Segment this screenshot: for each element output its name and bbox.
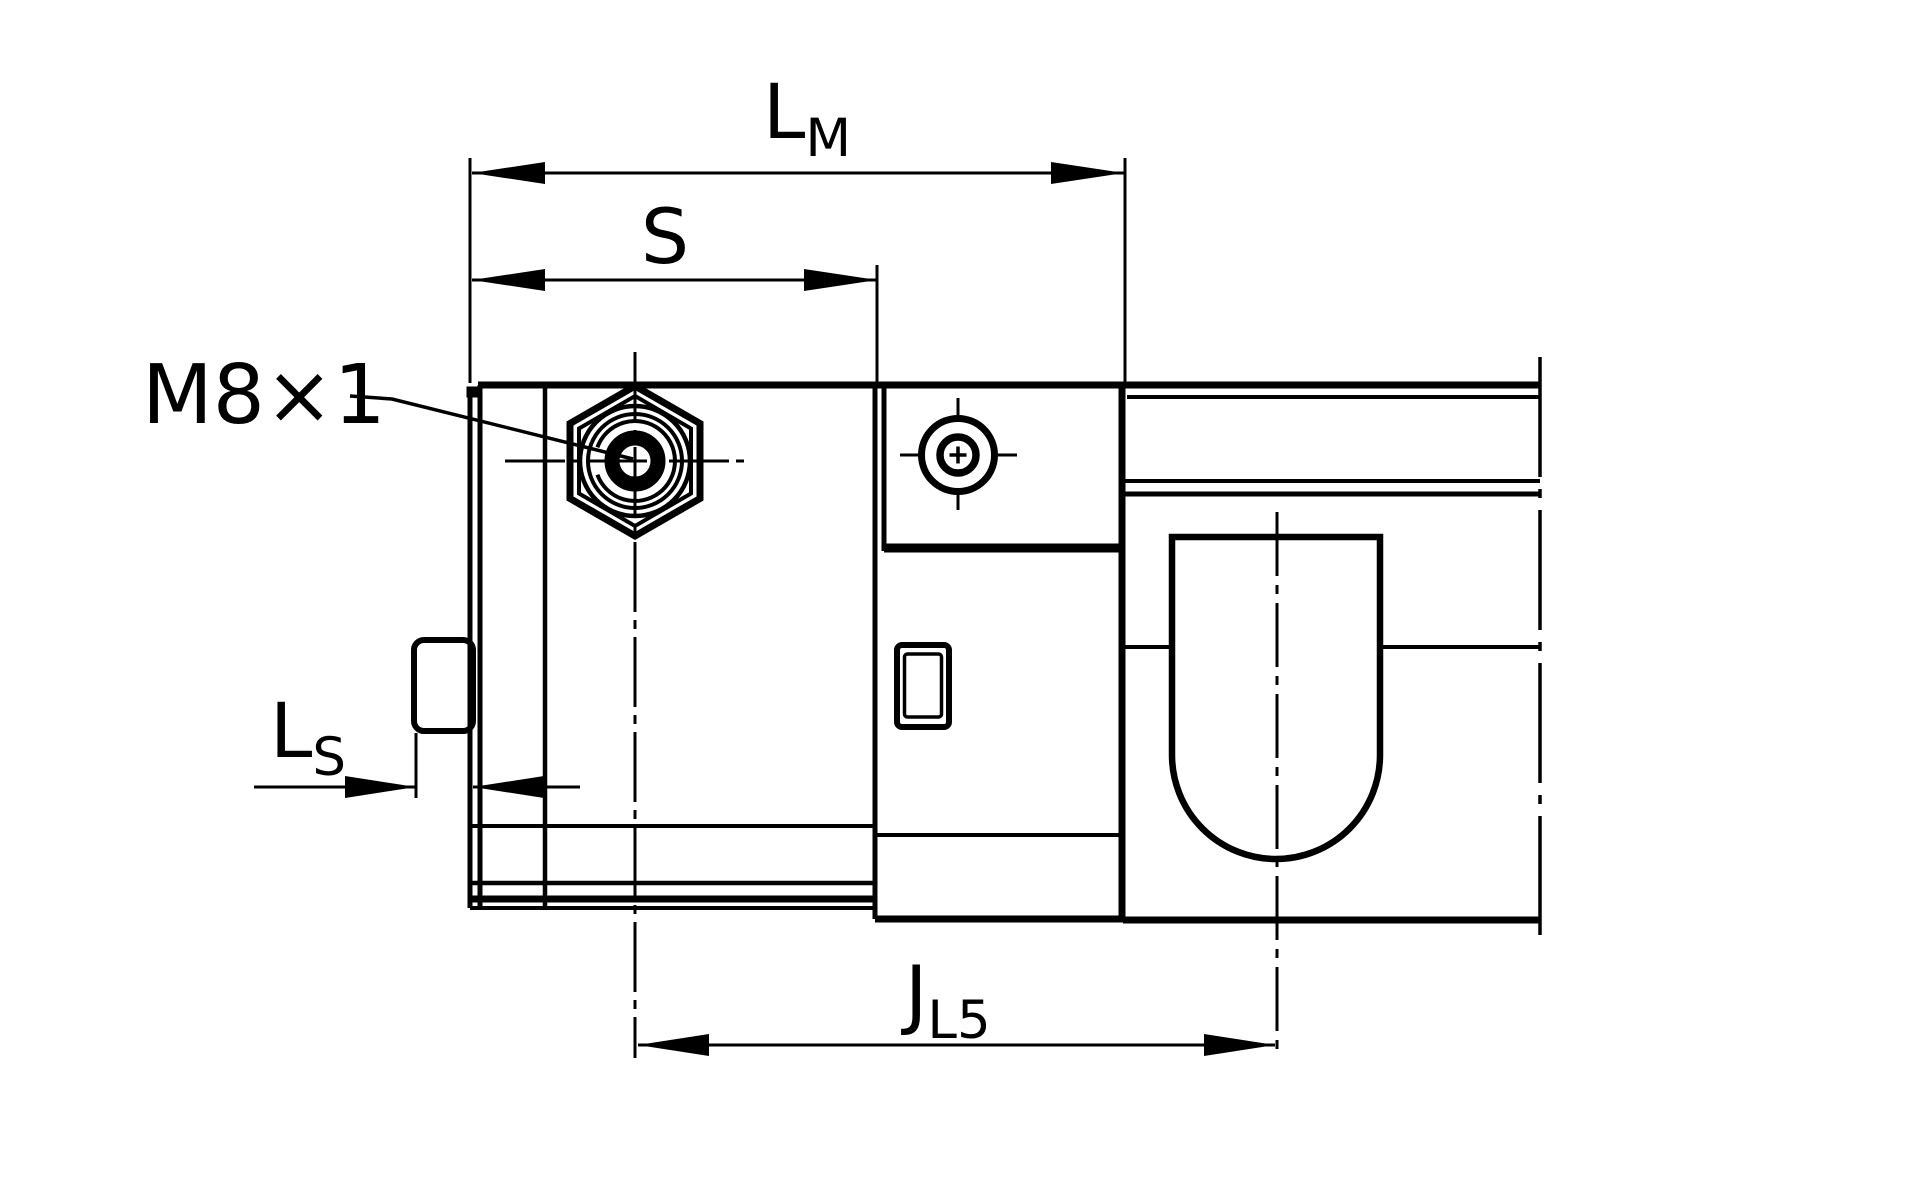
s-arrow-left [472,269,545,291]
technical-drawing: LM S LS JL5 M8×1 [0,0,1920,1200]
end-plug [414,640,473,731]
dimension-s-label: S [641,192,689,281]
dimension-lm-label: LM [763,67,851,169]
drawing-canvas: LM S LS JL5 M8×1 [0,0,1920,1200]
dimension-s: S [472,192,877,383]
ls-arrow-left [345,776,416,798]
top-left-corner-step [467,387,483,398]
thread-callout: M8×1 [142,348,633,459]
thread-callout-label: M8×1 [142,348,386,443]
jl5-arrow-left [638,1034,709,1056]
dimension-jl5-label: JL5 [901,949,991,1051]
s-arrow-right [804,269,877,291]
lm-arrow-right [1051,162,1124,184]
screw-head [900,398,1017,510]
ls-arrow-right [473,776,544,798]
jl5-arrow-right [1204,1034,1275,1056]
lm-arrow-left [472,162,545,184]
dimension-lm: LM [470,67,1125,383]
dimension-ls-label: LS [270,686,346,788]
dimension-jl5: JL5 [638,949,1275,1056]
